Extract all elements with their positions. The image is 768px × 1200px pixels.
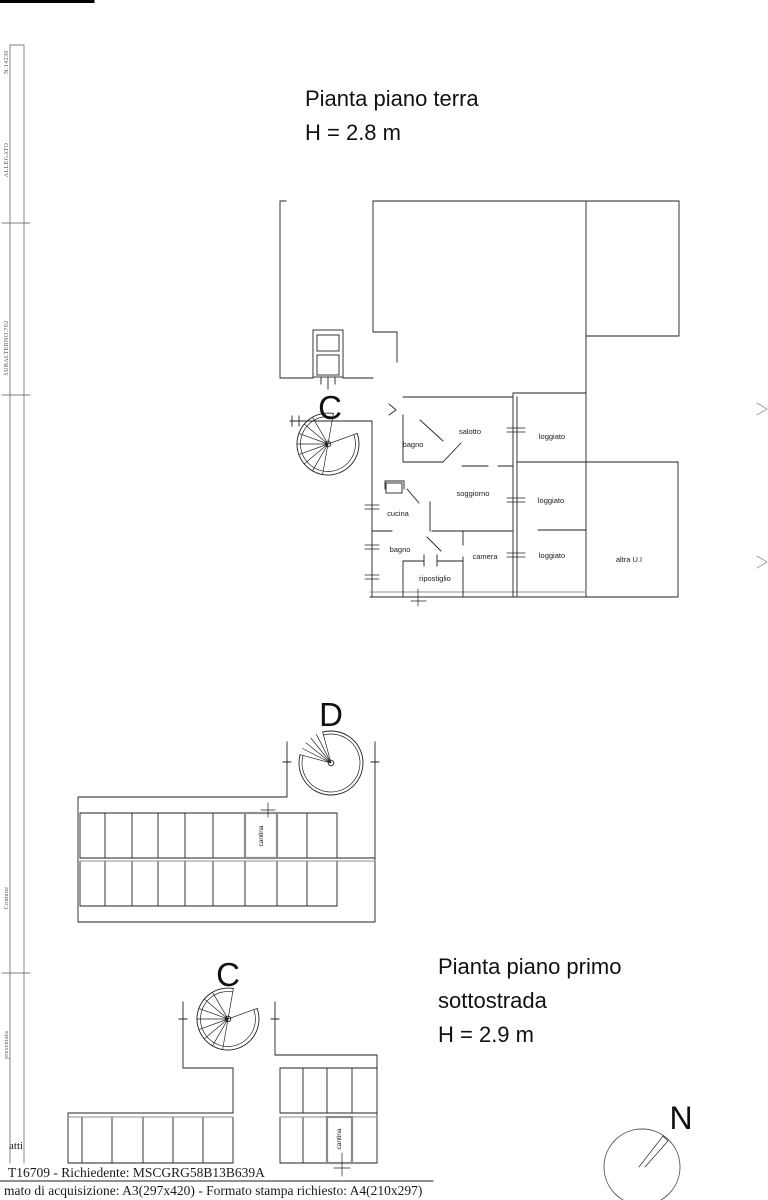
room-label-loggiato-2: loggiato <box>538 496 564 505</box>
room-label-salotto: salotto <box>459 427 481 436</box>
floor-plan-drawing: Pianta piano terra H = 2.8 m C D C N bag… <box>0 0 768 1200</box>
ground-floor-height-note: H = 2.8 m <box>305 120 401 145</box>
room-label-bagno-1: bagno <box>403 440 424 449</box>
margin-note-2: ALLEGATO <box>4 143 10 178</box>
margin-note-4: Comune <box>4 887 10 910</box>
ground-floor-title: Pianta piano terra <box>305 86 479 111</box>
spiral-staircase-icon <box>299 731 363 795</box>
margin-note-1: N.14230 <box>4 50 10 74</box>
basement-plan-d <box>78 731 379 922</box>
room-label-cantina-upper: cantina <box>258 825 265 846</box>
room-label-camera: camera <box>472 552 498 561</box>
room-label-loggiato-1: loggiato <box>539 432 565 441</box>
margin-note-3: SUBALTERNO.702 <box>4 320 10 375</box>
planimetry-page: Pianta piano terra H = 2.8 m C D C N bag… <box>0 0 768 1200</box>
room-label-cantina-lower: cantina <box>336 1128 343 1149</box>
shaft-structure <box>313 330 343 389</box>
room-label-soggiorno: soggiorno <box>457 489 490 498</box>
margin-note-5: presentata <box>4 1031 10 1059</box>
room-label-bagno-2: bagno <box>390 545 411 554</box>
section-letter-d: D <box>319 696 343 733</box>
spiral-staircase-icon <box>197 988 259 1050</box>
room-label-cucina: cucina <box>387 509 410 518</box>
room-label-loggiato-3: loggiato <box>539 551 565 560</box>
basement-title-line2: sottostrada <box>438 988 548 1013</box>
room-label-ripostiglio: ripostiglio <box>419 574 451 583</box>
section-letter-c-ground: C <box>318 389 342 426</box>
footer-atti-fragment: atti <box>9 1140 23 1152</box>
section-letter-c-basement: C <box>216 956 240 993</box>
north-label: N <box>669 1100 692 1136</box>
basement-plan-c <box>68 988 377 1176</box>
footer-richiedente-line: T16709 - Richiedente: MSCGRG58B13B639A <box>8 1165 265 1180</box>
page-margin-rules <box>0 2 767 1182</box>
north-compass-icon <box>604 1129 680 1200</box>
basement-title-line1: Pianta piano primo <box>438 954 621 979</box>
footer-formato-line: mato di acquisizione: A3(297x420) - Form… <box>4 1183 422 1198</box>
room-label-altra-ui: altra U.I <box>616 555 642 564</box>
basement-height-note: H = 2.9 m <box>438 1022 534 1047</box>
